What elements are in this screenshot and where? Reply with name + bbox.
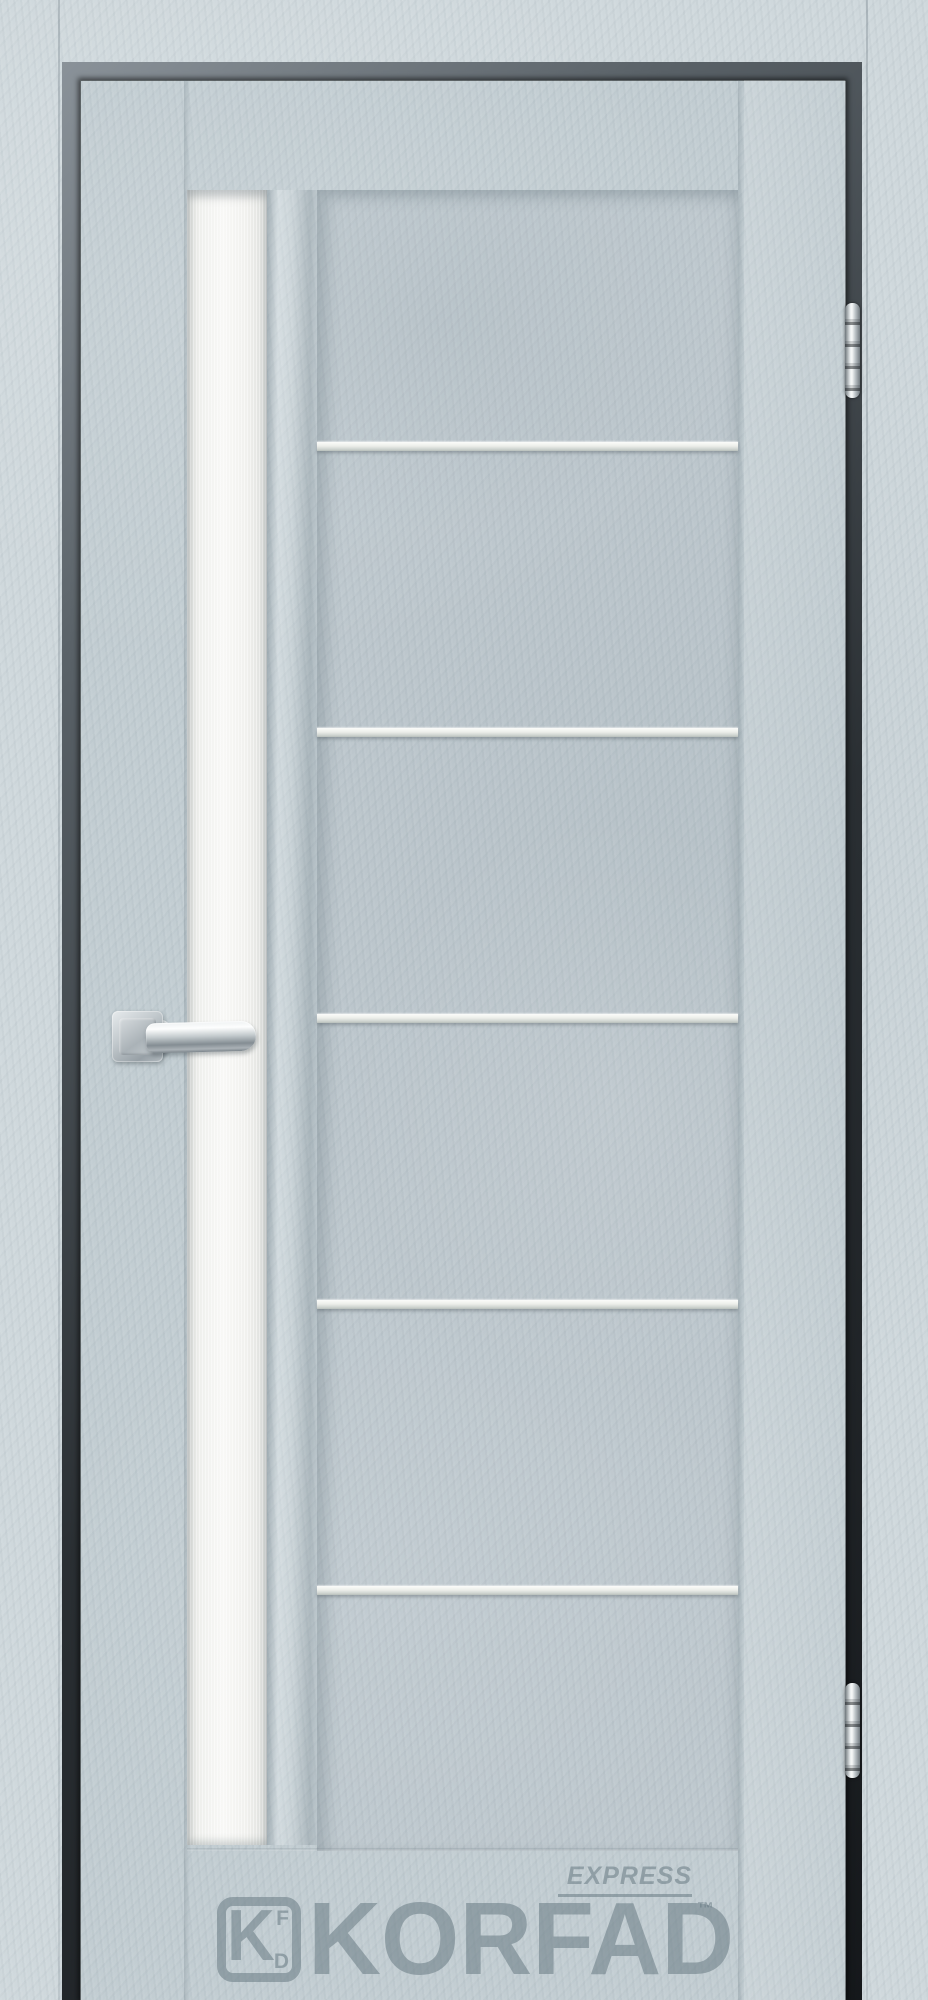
korfad-logo-badge: K F D — [217, 1897, 301, 1982]
trademark-symbol: ™ — [697, 1899, 714, 1919]
bottom-hinge — [845, 1683, 860, 1778]
right-stile — [744, 80, 846, 2000]
brand-wordmark: KORFAD — [308, 1893, 734, 1985]
aluminium-molding-strip — [317, 442, 738, 451]
aluminium-molding-strip — [317, 728, 738, 737]
aluminium-molding-strip — [317, 1300, 738, 1309]
glass-mullion — [267, 190, 317, 1845]
logo-letter-d: D — [274, 1951, 289, 1972]
top-hinge — [845, 303, 860, 398]
logo-monogram-k: K — [227, 1900, 271, 1972]
product-line-label: EXPRESS — [558, 1862, 692, 1897]
bottom-rail-edge — [187, 1848, 738, 1851]
casing-joint-right — [866, 0, 868, 2000]
frosted-glass-insert — [187, 190, 267, 1845]
aluminium-molding-strip — [317, 1014, 738, 1023]
aluminium-molding-strip — [317, 1586, 738, 1595]
door-handle-lever — [146, 1021, 257, 1054]
casing-joint-left — [58, 0, 60, 2000]
door-product-photo: K F D KORFAD EXPRESS ™ — [0, 0, 928, 2000]
logo-letter-f: F — [276, 1908, 289, 1929]
right-stile-edge — [738, 80, 744, 2000]
